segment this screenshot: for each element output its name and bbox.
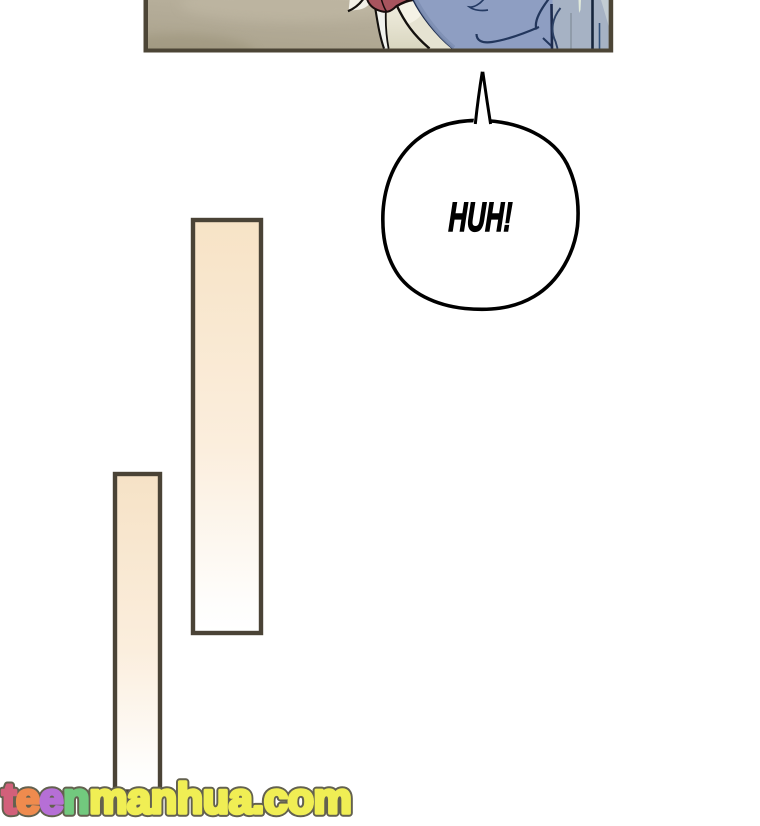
svg-text:teenmanhua.com: teenmanhua.com xyxy=(2,775,351,823)
svg-text:HUH!: HUH! xyxy=(448,195,513,241)
